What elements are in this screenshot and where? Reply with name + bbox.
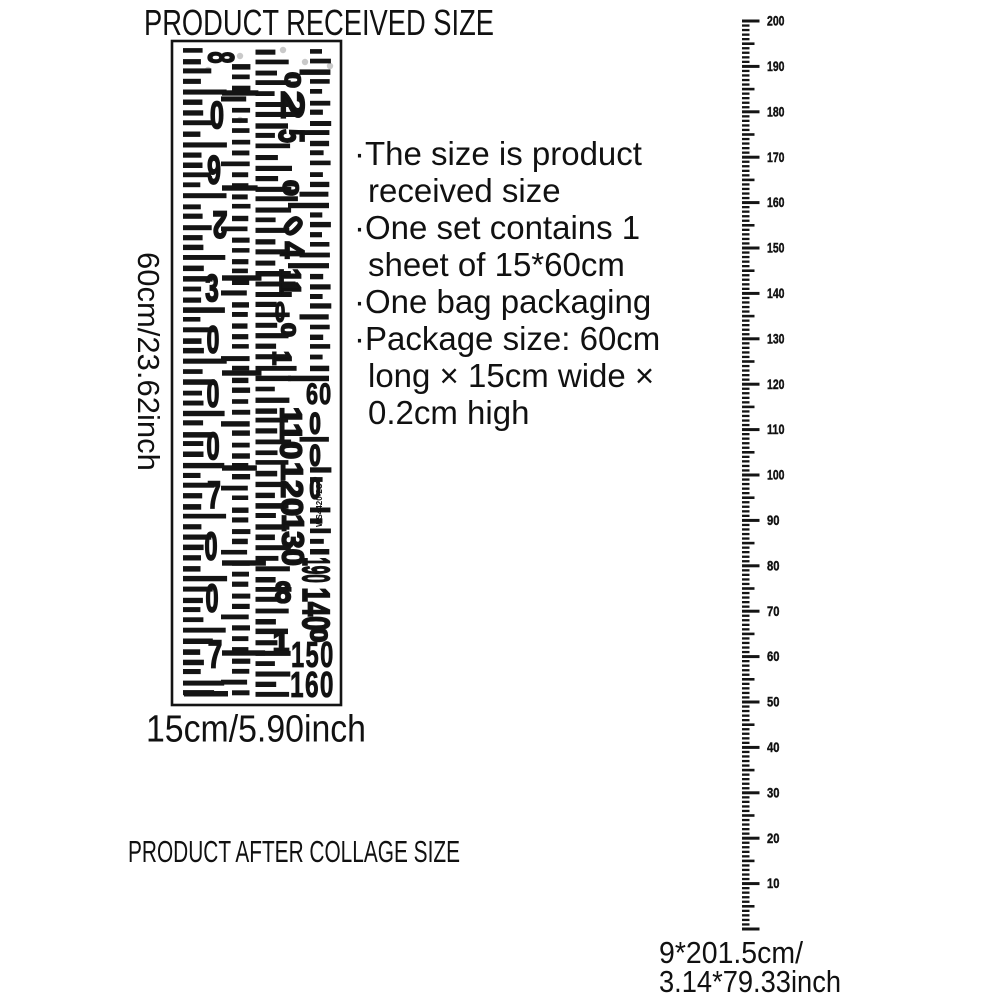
svg-text:140: 140 [295, 587, 337, 630]
svg-text:2: 2 [213, 204, 228, 247]
svg-text:7: 7 [207, 474, 221, 517]
svg-text:130: 130 [767, 331, 785, 346]
svg-text:110: 110 [273, 407, 308, 459]
svg-text:30: 30 [767, 785, 780, 800]
svg-text:2: 2 [274, 91, 310, 119]
svg-text:60cm/23.62inch: 60cm/23.62inch [131, 252, 166, 471]
svg-text:long × 15cm wide ×: long × 15cm wide × [368, 357, 654, 394]
svg-text:PRODUCT AFTER COLLAGE SIZE: PRODUCT AFTER COLLAGE SIZE [128, 834, 460, 869]
svg-text:90: 90 [767, 513, 780, 528]
svg-text:0: 0 [278, 180, 302, 196]
svg-text:50: 50 [767, 695, 780, 710]
svg-text:0: 0 [205, 576, 218, 620]
svg-text:190: 190 [767, 59, 785, 74]
svg-text:20: 20 [767, 831, 780, 846]
svg-text:120: 120 [274, 462, 309, 516]
svg-text:160: 160 [290, 664, 335, 705]
svg-text:3: 3 [205, 267, 219, 310]
svg-text:0: 0 [207, 319, 220, 361]
svg-text:11: 11 [273, 268, 306, 296]
svg-text:150: 150 [767, 241, 785, 256]
svg-text:70: 70 [767, 604, 780, 619]
svg-text:10: 10 [767, 876, 780, 891]
svg-text:0: 0 [309, 408, 320, 441]
svg-text:60: 60 [306, 376, 332, 410]
svg-text:0: 0 [280, 72, 304, 88]
svg-text:60: 60 [767, 649, 780, 664]
svg-text:190: 190 [294, 557, 336, 582]
svg-text:100: 100 [767, 468, 785, 483]
svg-text:200: 200 [767, 14, 785, 29]
svg-text:·Package size: 60cm: ·Package size: 60cm [354, 320, 660, 357]
svg-text:5: 5 [271, 129, 312, 143]
svg-text:7: 7 [208, 633, 222, 677]
svg-text:170: 170 [767, 150, 785, 165]
svg-text:80: 80 [767, 558, 780, 573]
svg-text:0: 0 [207, 373, 220, 415]
svg-text:8: 8 [275, 577, 292, 610]
svg-text:0: 0 [206, 424, 219, 467]
svg-text:8: 8 [200, 51, 240, 63]
svg-text:180: 180 [767, 104, 785, 119]
svg-text:110: 110 [767, 422, 785, 437]
svg-text:·One set contains 1: ·One set contains 1 [354, 209, 640, 246]
svg-text:15cm/5.90inch: 15cm/5.90inch [146, 709, 366, 751]
svg-text:160: 160 [767, 195, 785, 210]
svg-text:140: 140 [767, 286, 785, 301]
svg-text:0: 0 [309, 440, 320, 473]
svg-text:120: 120 [767, 377, 785, 392]
svg-text:0.2cm high: 0.2cm high [368, 394, 529, 431]
svg-text:0: 0 [210, 94, 224, 136]
svg-text:received size: received size [368, 172, 561, 209]
svg-text:9: 9 [207, 149, 221, 193]
svg-text:·One bag packaging: ·One bag packaging [354, 283, 651, 320]
svg-text:WS4420-2C: WS4420-2C [315, 483, 324, 527]
svg-text:1: 1 [273, 626, 290, 659]
svg-text:0: 0 [305, 628, 332, 643]
svg-text:0: 0 [204, 524, 217, 568]
svg-text:3.14*79.33inch: 3.14*79.33inch [659, 964, 841, 999]
svg-text:0: 0 [277, 323, 299, 337]
svg-text:sheet of 15*60cm: sheet of 15*60cm [368, 246, 625, 283]
svg-text:1: 1 [267, 351, 297, 365]
svg-text:40: 40 [767, 740, 780, 755]
svg-text:PRODUCT RECEIVED SIZE: PRODUCT RECEIVED SIZE [144, 2, 494, 43]
svg-text:4: 4 [273, 241, 311, 258]
svg-text:·The size is product: ·The size is product [354, 135, 642, 172]
